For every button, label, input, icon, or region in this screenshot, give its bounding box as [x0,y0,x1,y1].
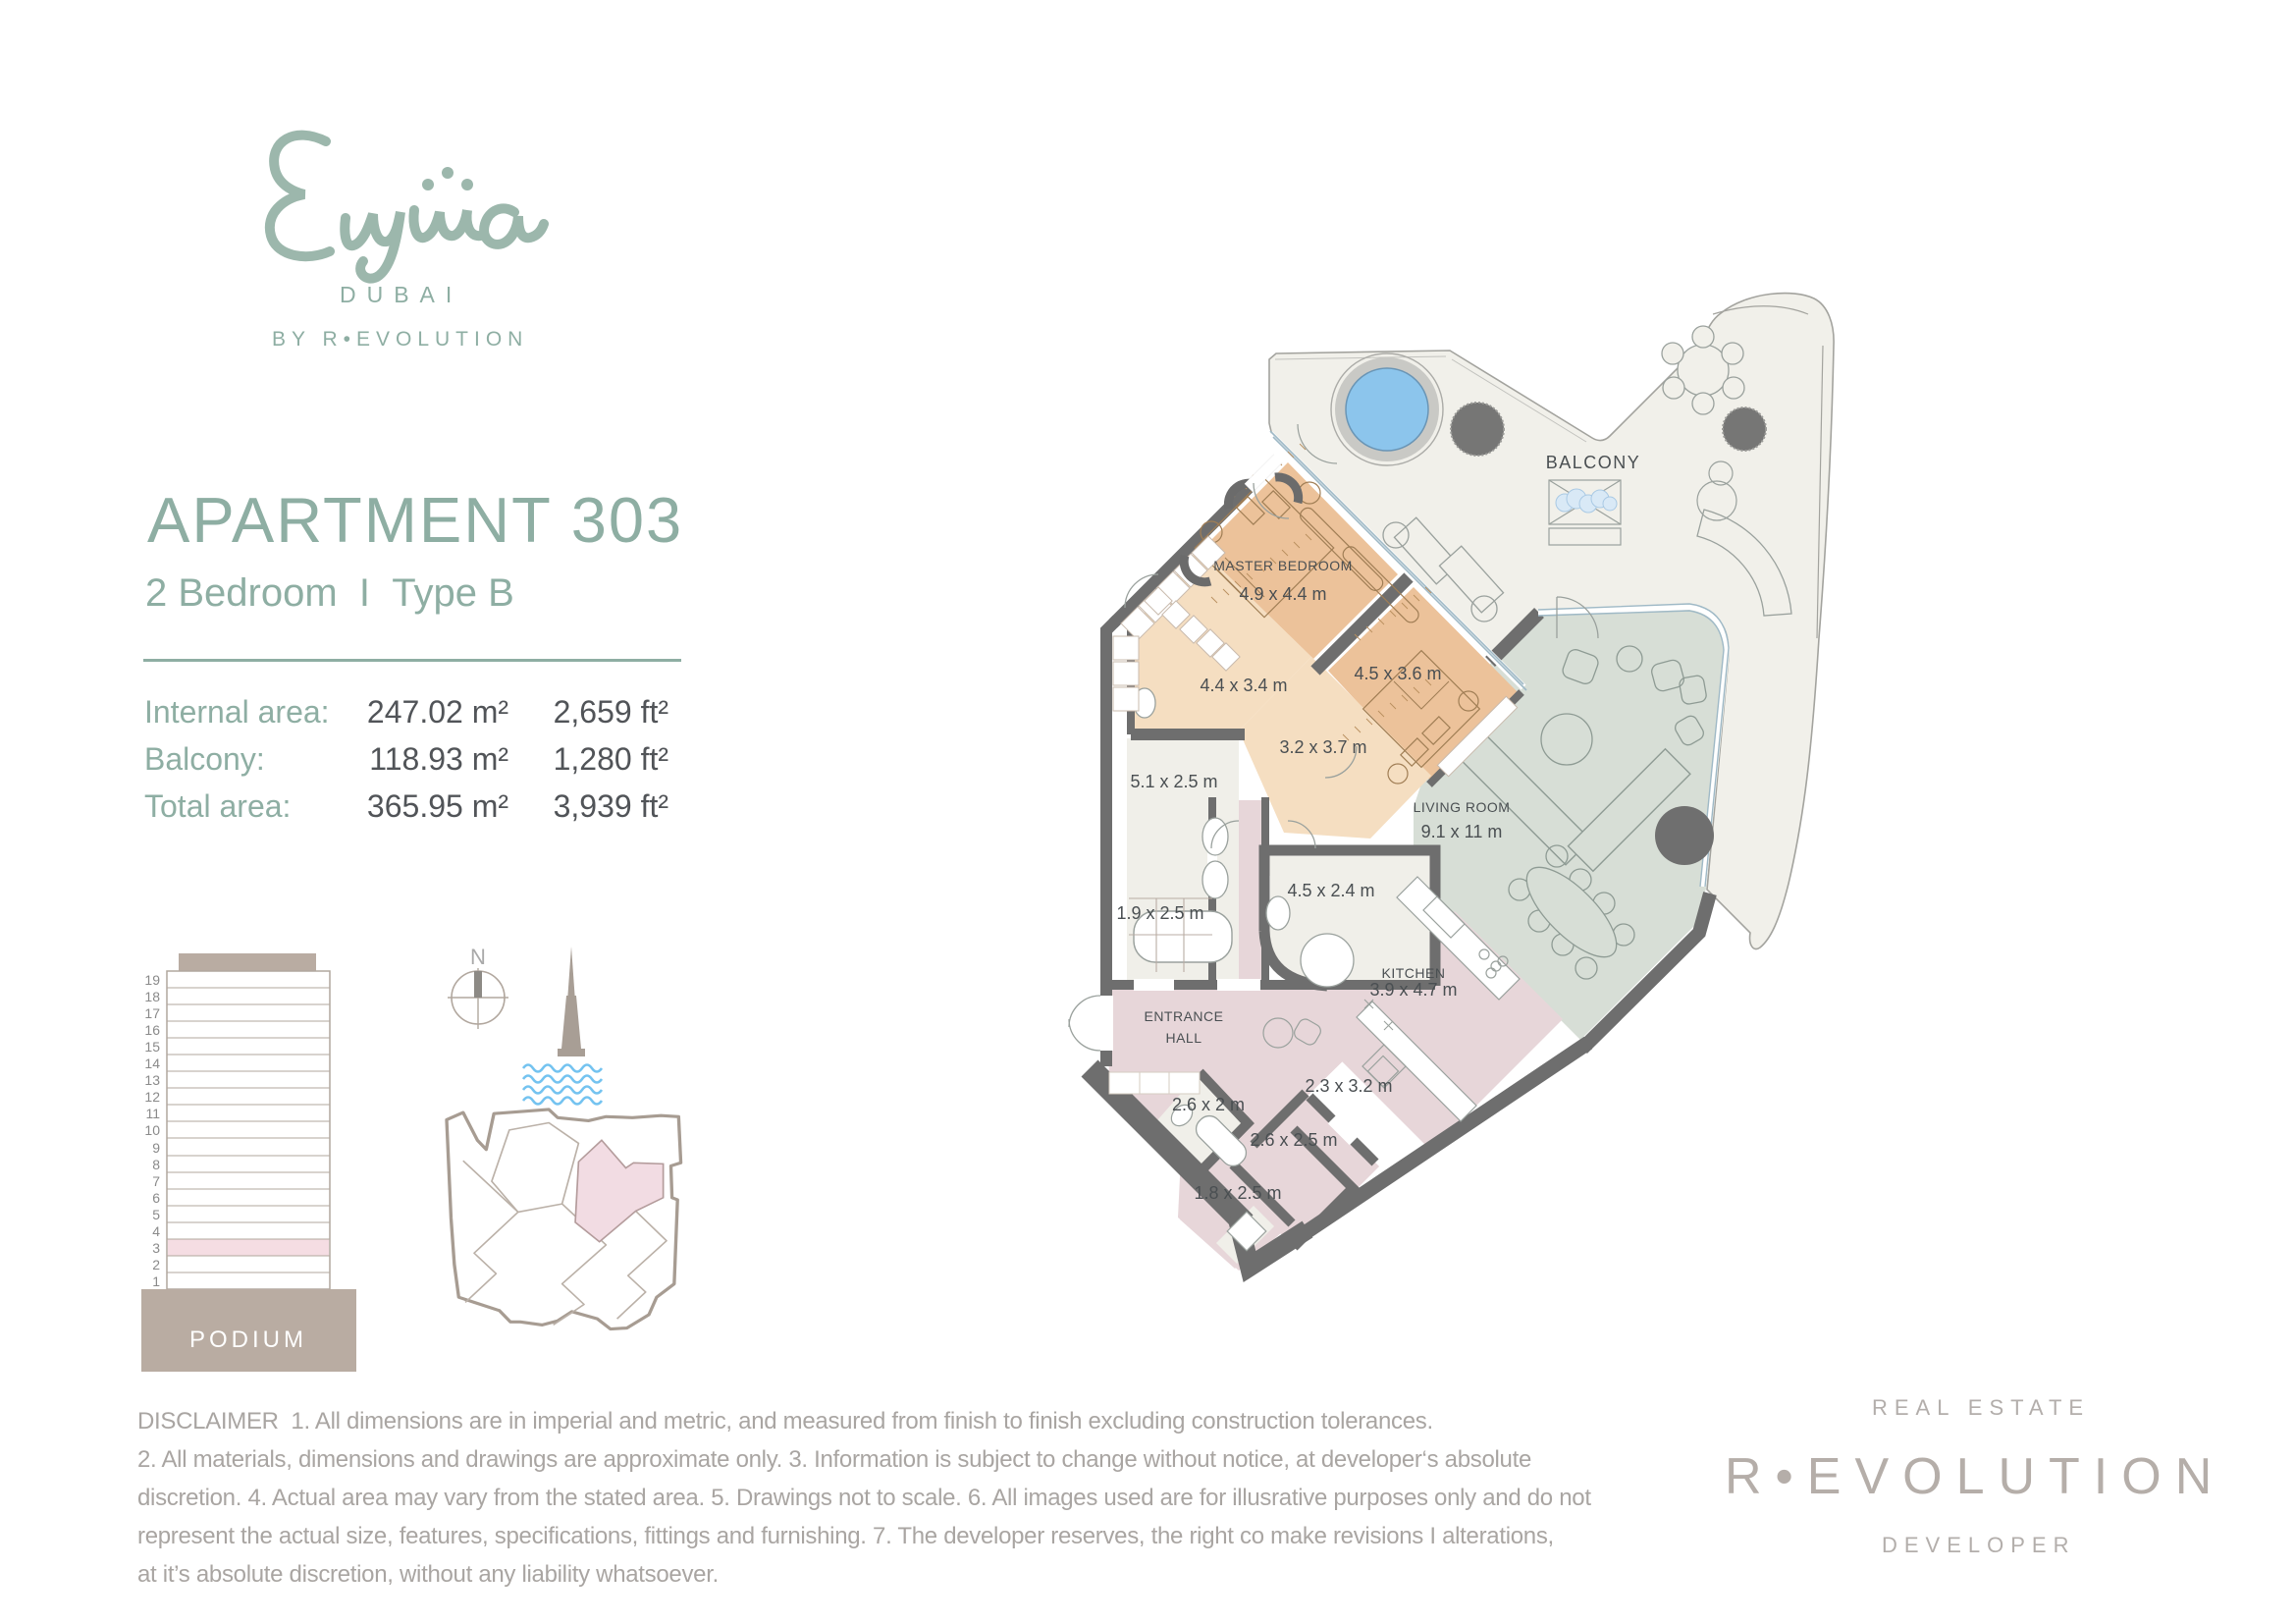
svg-text:9.1 x 11 m: 9.1 x 11 m [1421,822,1503,841]
svg-text:4.9 x 4.4 m: 4.9 x 4.4 m [1239,584,1326,604]
svg-text:4.4 x 3.4 m: 4.4 x 3.4 m [1200,676,1287,695]
svg-text:17: 17 [144,1005,160,1021]
svg-text:1: 1 [152,1273,160,1289]
svg-text:11: 11 [145,1106,160,1121]
svg-text:LIVING ROOM: LIVING ROOM [1414,799,1511,815]
svg-text:BALCONY: BALCONY [1546,453,1641,472]
svg-text:16: 16 [144,1022,160,1038]
svg-text:5.1 x 2.5 m: 5.1 x 2.5 m [1130,772,1217,791]
svg-text:KITCHEN: KITCHEN [1382,965,1446,981]
svg-text:18: 18 [144,989,160,1004]
svg-text:13: 13 [144,1072,160,1088]
svg-text:3: 3 [152,1240,160,1256]
svg-text:MASTER BEDROOM: MASTER BEDROOM [1213,558,1353,573]
svg-text:8: 8 [152,1157,160,1172]
svg-text:4.5 x 2.4 m: 4.5 x 2.4 m [1287,881,1374,900]
svg-text:1.9 x 2.5 m: 1.9 x 2.5 m [1116,903,1203,923]
svg-text:PODIUM: PODIUM [189,1326,307,1353]
svg-text:15: 15 [144,1039,160,1055]
svg-text:2.6 x 2 m: 2.6 x 2 m [1172,1095,1245,1114]
svg-text:2.6 x 2.5 m: 2.6 x 2.5 m [1250,1130,1337,1150]
svg-text:ENTRANCE: ENTRANCE [1144,1008,1223,1024]
svg-text:2: 2 [152,1257,160,1272]
svg-text:N: N [470,945,486,969]
svg-text:5: 5 [152,1207,160,1222]
svg-text:2.3 x 3.2 m: 2.3 x 3.2 m [1305,1076,1392,1096]
svg-text:14: 14 [144,1056,160,1071]
svg-text:10: 10 [144,1122,160,1138]
svg-text:3.9 x 4.7 m: 3.9 x 4.7 m [1369,980,1457,1000]
svg-text:HALL: HALL [1165,1030,1201,1046]
svg-text:9: 9 [152,1140,160,1156]
svg-text:1.8 x 2.5 m: 1.8 x 2.5 m [1194,1183,1281,1203]
svg-text:19: 19 [144,972,160,988]
svg-text:4.5 x 3.6 m: 4.5 x 3.6 m [1354,664,1441,683]
svg-text:4: 4 [152,1223,160,1239]
svg-text:3.2 x 3.7 m: 3.2 x 3.7 m [1279,737,1366,757]
svg-text:7: 7 [152,1173,160,1189]
svg-text:12: 12 [144,1089,160,1105]
svg-text:6: 6 [152,1190,160,1206]
